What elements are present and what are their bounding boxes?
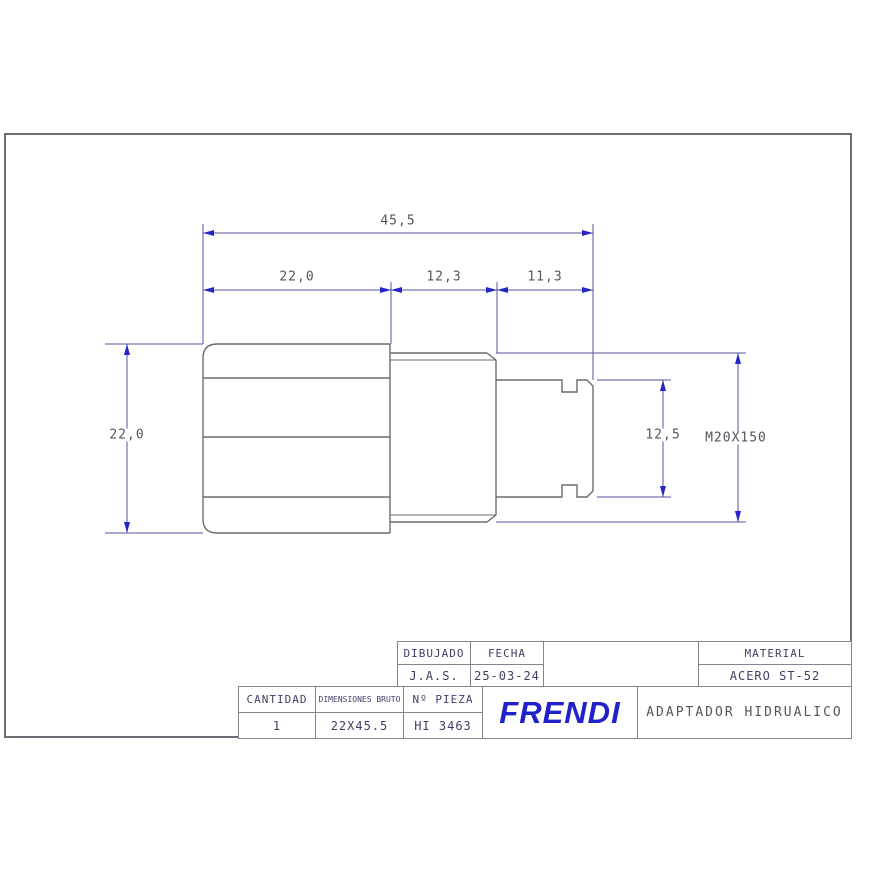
- company-logo: FRENDI: [482, 686, 638, 739]
- titleblock-empty-cell: [543, 641, 699, 687]
- titleblock-cantidad-label: CANTIDAD: [238, 686, 316, 713]
- titleblock-dimensiones-value: 22X45.5: [315, 712, 404, 739]
- titleblock-pieza-label: Nº PIEZA: [403, 686, 483, 713]
- titleblock-cantidad-value: 1: [238, 712, 316, 739]
- titleblock-fecha-label: FECHA: [470, 641, 544, 665]
- dimension-total-length: 45,5: [380, 215, 415, 228]
- dimension-pilot-diameter: 12,5: [642, 429, 683, 442]
- part-front-view: [203, 344, 593, 533]
- titleblock-dibujado-label: DIBUJADO: [397, 641, 471, 665]
- titleblock-fecha-value: 25-03-24: [470, 664, 544, 687]
- dimension-thread-length: 12,3: [426, 271, 461, 284]
- dimension-thread-spec: M20X150: [702, 432, 770, 445]
- dimension-hex-width: 22,0: [106, 429, 147, 442]
- dimension-pilot-length: 11,3: [527, 271, 562, 284]
- titleblock-material-value: ACERO ST-52: [698, 664, 852, 687]
- titleblock-dimensiones-label: DIMENSIONES BRUTO: [315, 686, 404, 713]
- part-title: ADAPTADOR HIDRUALICO: [637, 686, 852, 739]
- dimension-hex-length: 22,0: [279, 271, 314, 284]
- titleblock-pieza-value: HI 3463: [403, 712, 483, 739]
- titleblock-dibujado-value: J.A.S.: [397, 664, 471, 687]
- titleblock-material-label: MATERIAL: [698, 641, 852, 665]
- engineering-drawing-sheet: 45,5 22,0 12,3 11,3 22,0 12,5 M20X150 DI…: [0, 0, 869, 869]
